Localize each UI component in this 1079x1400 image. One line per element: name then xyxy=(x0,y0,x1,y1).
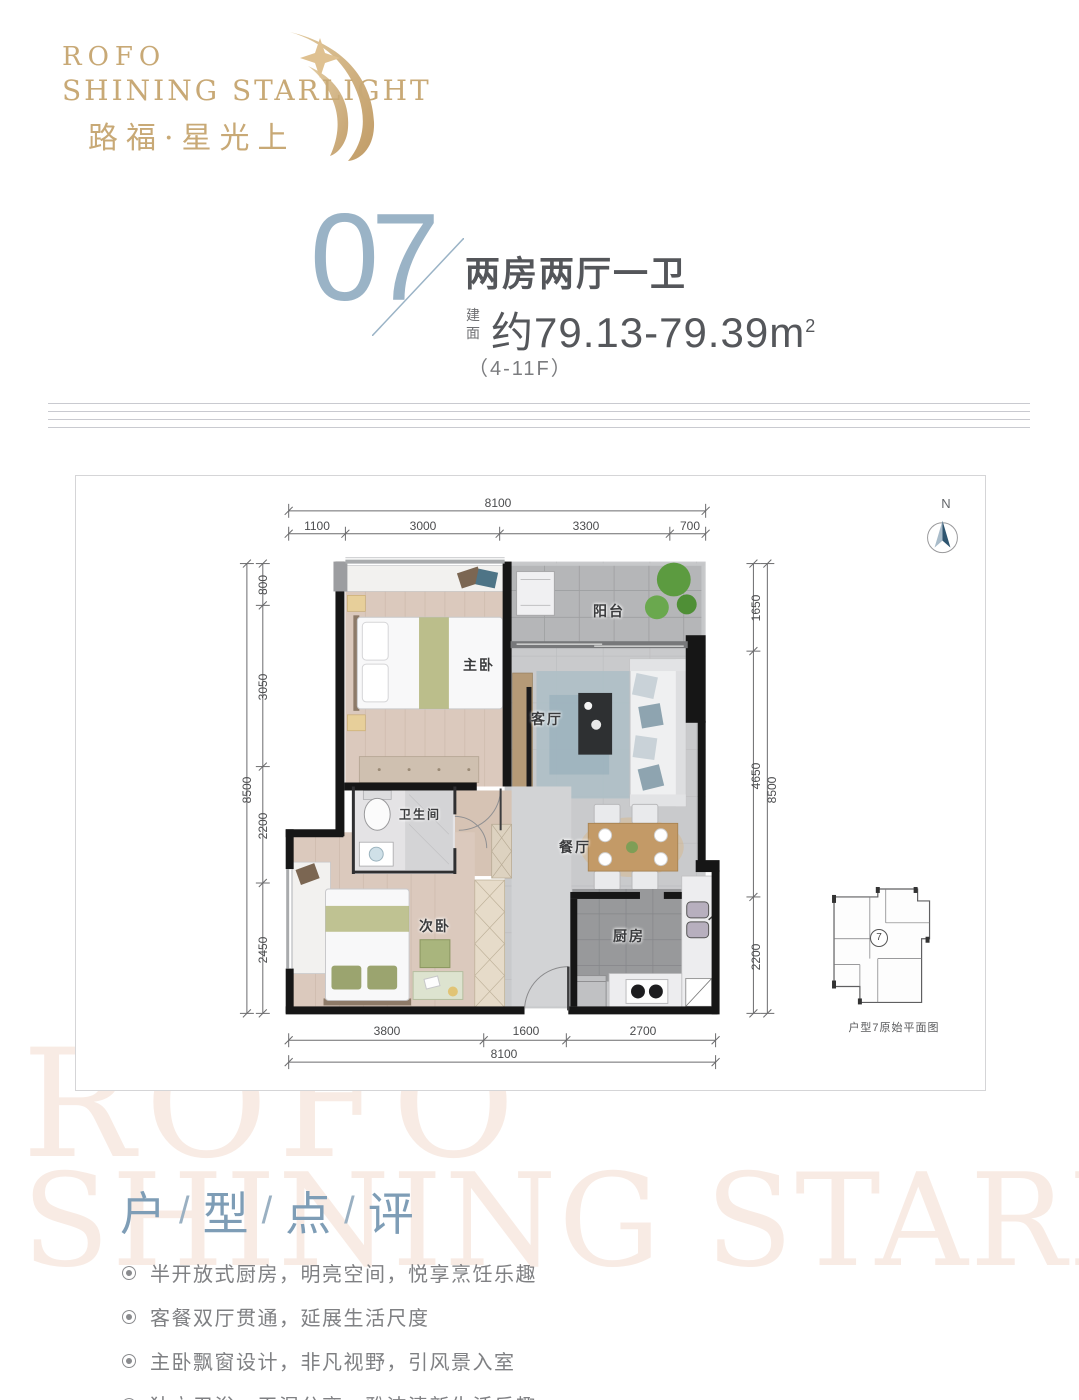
page: ROFO SHINING STARLIGHT ROFO SHINING STAR… xyxy=(0,0,1079,1400)
inset-unit-mark: 7 xyxy=(870,929,888,947)
unit-area: 建面 约79.13-79.39m2 xyxy=(466,299,816,360)
dim-right-1: 1650 xyxy=(749,578,763,638)
dim-right-2: 4650 xyxy=(749,746,763,806)
list-item: 主卧飘窗设计，非凡视野，引风景入室 xyxy=(122,1346,537,1375)
area-value: 约79.13-79.39m2 xyxy=(491,299,816,360)
floor-plan-panel: 8100 1100 3000 3300 700 8500 800 3050 22… xyxy=(75,475,986,1091)
north-indicator-label: N xyxy=(931,496,961,511)
dim-left-total: 8500 xyxy=(240,760,254,820)
bullet-text: 独立卫浴，干湿分离，雅洁清新生活乐趣 xyxy=(150,1390,537,1400)
divider-line xyxy=(48,411,1030,412)
bullet-icon xyxy=(122,1354,136,1368)
divider-line xyxy=(48,419,1030,420)
bullet-text: 客餐双厅贯通，延展生活尺度 xyxy=(150,1302,430,1331)
area-prefix-label: 建面 xyxy=(466,307,483,342)
dim-left-1: 800 xyxy=(256,555,270,615)
dim-left-2: 3050 xyxy=(256,657,270,717)
room-label-second-bedroom: 次卧 xyxy=(419,916,451,936)
dim-bottom-total: 8100 xyxy=(474,1047,534,1061)
list-item: 半开放式厨房，明亮空间，悦享烹饪乐趣 xyxy=(122,1258,537,1287)
logo-text-en1: ROFO xyxy=(62,42,432,72)
unit-number-slash xyxy=(372,238,464,336)
dim-bottom-2: 1600 xyxy=(496,1024,556,1038)
room-label-master-bedroom: 主卧 xyxy=(463,655,495,675)
dim-top-3: 3300 xyxy=(556,519,616,533)
dim-top-total: 8100 xyxy=(468,496,528,510)
inset-caption: 户型7原始平面图 xyxy=(829,1019,959,1035)
dim-top-2: 3000 xyxy=(393,519,453,533)
bullet-icon xyxy=(122,1266,136,1280)
title-separator: / xyxy=(262,1190,274,1233)
dim-bottom-3: 2700 xyxy=(613,1024,673,1038)
list-item: 独立卫浴，干湿分离，雅洁清新生活乐趣 xyxy=(122,1390,537,1400)
bullet-icon xyxy=(122,1310,136,1324)
bullet-text: 半开放式厨房，明亮空间，悦享烹饪乐趣 xyxy=(150,1258,537,1287)
review-title-char: 点 xyxy=(285,1178,332,1244)
bullet-text: 主卧飘窗设计，非凡视野，引风景入室 xyxy=(150,1346,516,1375)
review-section-title: 户 / 型 / 点 / 评 xyxy=(120,1178,415,1244)
brand-logo: ROFO SHINING STARLIGHT 路福·星光上 xyxy=(62,42,432,157)
unit-type-label: 两房两厅一卫 xyxy=(465,246,687,297)
dim-left-3: 2200 xyxy=(256,796,270,856)
floor-plan-graphic xyxy=(76,476,985,1090)
room-label-bathroom: 卫生间 xyxy=(399,806,441,823)
room-label-kitchen: 厨房 xyxy=(613,926,645,946)
review-title-char: 户 xyxy=(120,1178,167,1244)
review-bullet-list: 半开放式厨房，明亮空间，悦享烹饪乐趣 客餐双厅贯通，延展生活尺度 主卧飘窗设计，… xyxy=(122,1258,537,1400)
dim-right-3: 2200 xyxy=(749,927,763,987)
divider-line xyxy=(48,427,1030,428)
dim-top-4: 700 xyxy=(660,519,720,533)
divider-line xyxy=(48,403,1030,404)
dim-right-total: 8500 xyxy=(765,760,779,820)
area-superscript: 2 xyxy=(805,316,816,336)
logo-text-en2: SHINING STARLIGHT xyxy=(62,74,432,107)
title-separator: / xyxy=(344,1190,356,1233)
title-separator: / xyxy=(179,1190,191,1233)
dim-bottom-1: 3800 xyxy=(357,1024,417,1038)
room-label-balcony: 阳台 xyxy=(593,601,625,621)
review-title-char: 型 xyxy=(203,1178,250,1244)
area-number: 约79.13-79.39m xyxy=(491,309,805,356)
room-label-living-room: 客厅 xyxy=(531,709,563,729)
review-title-char: 评 xyxy=(368,1178,415,1244)
dim-left-4: 2450 xyxy=(256,920,270,980)
list-item: 客餐双厅贯通，延展生活尺度 xyxy=(122,1302,537,1331)
dim-top-1: 1100 xyxy=(287,519,347,533)
floor-range-label: （4-11F） xyxy=(468,352,573,381)
room-label-dining-room: 餐厅 xyxy=(559,837,591,857)
logo-text-cn: 路福·星光上 xyxy=(88,113,432,157)
